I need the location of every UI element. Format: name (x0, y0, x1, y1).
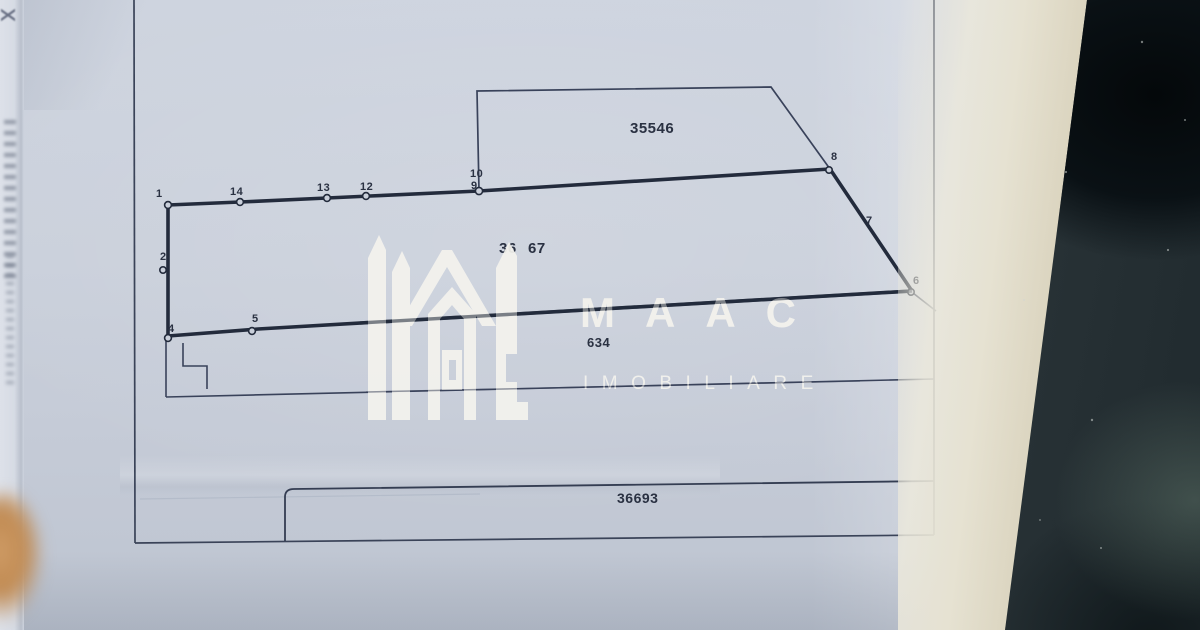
dust-specks (0, 0, 1200, 630)
photo-of-cadastral-plan: { "watermark": { "brand": "MAAC", "subti… (0, 0, 1200, 630)
